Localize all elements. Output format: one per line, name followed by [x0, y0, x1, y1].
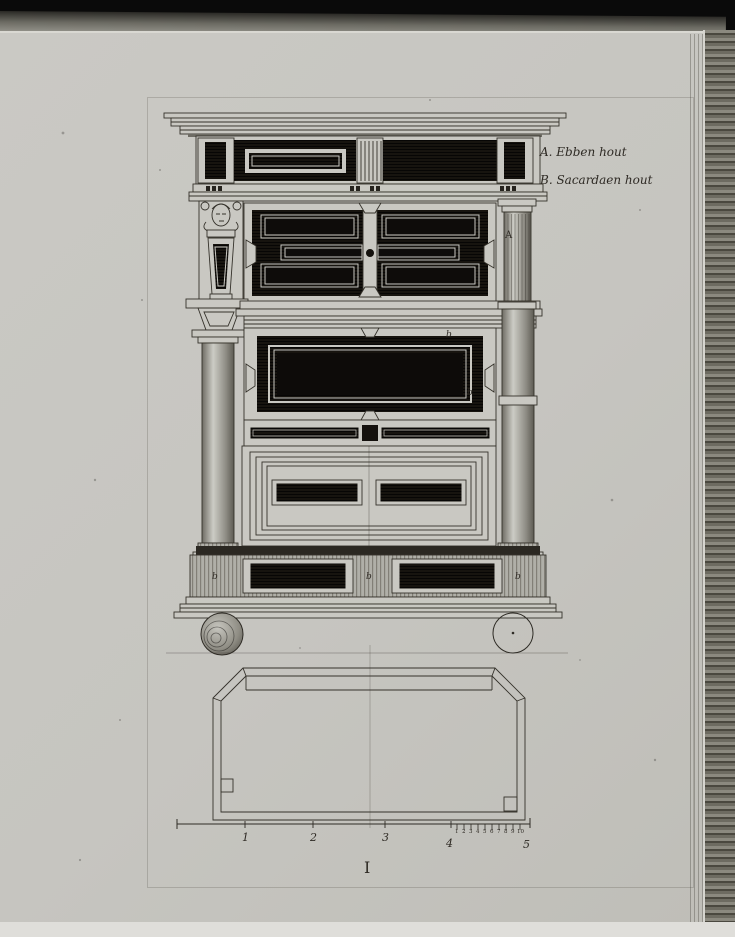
scale-tick-4: 4 [445, 837, 453, 850]
engraving: A [0, 0, 735, 937]
scale-tick-1: 1 [242, 831, 249, 844]
ball-foot-left [201, 613, 243, 655]
scale-minor-2: 2 [462, 829, 466, 835]
upper-right-column: A [498, 199, 536, 302]
base-plinth: b b b [174, 546, 562, 618]
label-b-plinth-left: b [212, 572, 218, 582]
scale-minor-10: 10 [517, 829, 524, 835]
scale-minor-1: 1 [455, 829, 459, 835]
label-b-middle-top: b [446, 330, 452, 340]
label-column-a: A [504, 230, 513, 241]
label-b-plinth-center: b [366, 572, 372, 582]
scale-minor-9: 9 [511, 829, 515, 835]
label-b-plinth-right: b [515, 572, 521, 582]
cabinet-elevation: A [164, 113, 568, 828]
scale-minor-6: 6 [490, 829, 494, 835]
scale-tick-5: 5 [523, 838, 530, 851]
label-b-middle-side: b [467, 388, 473, 398]
right-column [493, 309, 543, 560]
architrave-band [189, 184, 547, 201]
upper-doors [244, 203, 496, 302]
scale-minor-4: 4 [476, 829, 480, 835]
plan-view [213, 668, 525, 820]
scale-bar: 1 2 3 4 5 1 2 3 4 5 6 7 8 9 10 [177, 818, 530, 851]
frieze [196, 136, 540, 184]
legend-entry-a: A. Ebben hout [539, 145, 627, 159]
scale-minor-5: 5 [483, 829, 487, 835]
scale-tick-3: 3 [382, 831, 389, 844]
scale-minor-7: 7 [497, 829, 501, 835]
herm-pilaster [199, 201, 243, 301]
middle-door: b b [244, 328, 496, 420]
scale-minor-8: 8 [504, 829, 508, 835]
scale-tick-2: 2 [309, 831, 317, 844]
legend-entry-b: B. Sacardaen hout [539, 173, 653, 187]
scale-minor-3: 3 [469, 829, 473, 835]
scanned-book-plate: A [0, 0, 735, 937]
plan-corner-block-right [504, 797, 517, 811]
drawer-band [244, 420, 496, 446]
top-cornice [164, 113, 566, 137]
ball-foot-right [493, 613, 533, 653]
lower-door [242, 446, 496, 546]
left-column [193, 343, 243, 560]
plate-numeral: I [364, 858, 370, 877]
plan-corner-block-left [221, 779, 233, 792]
